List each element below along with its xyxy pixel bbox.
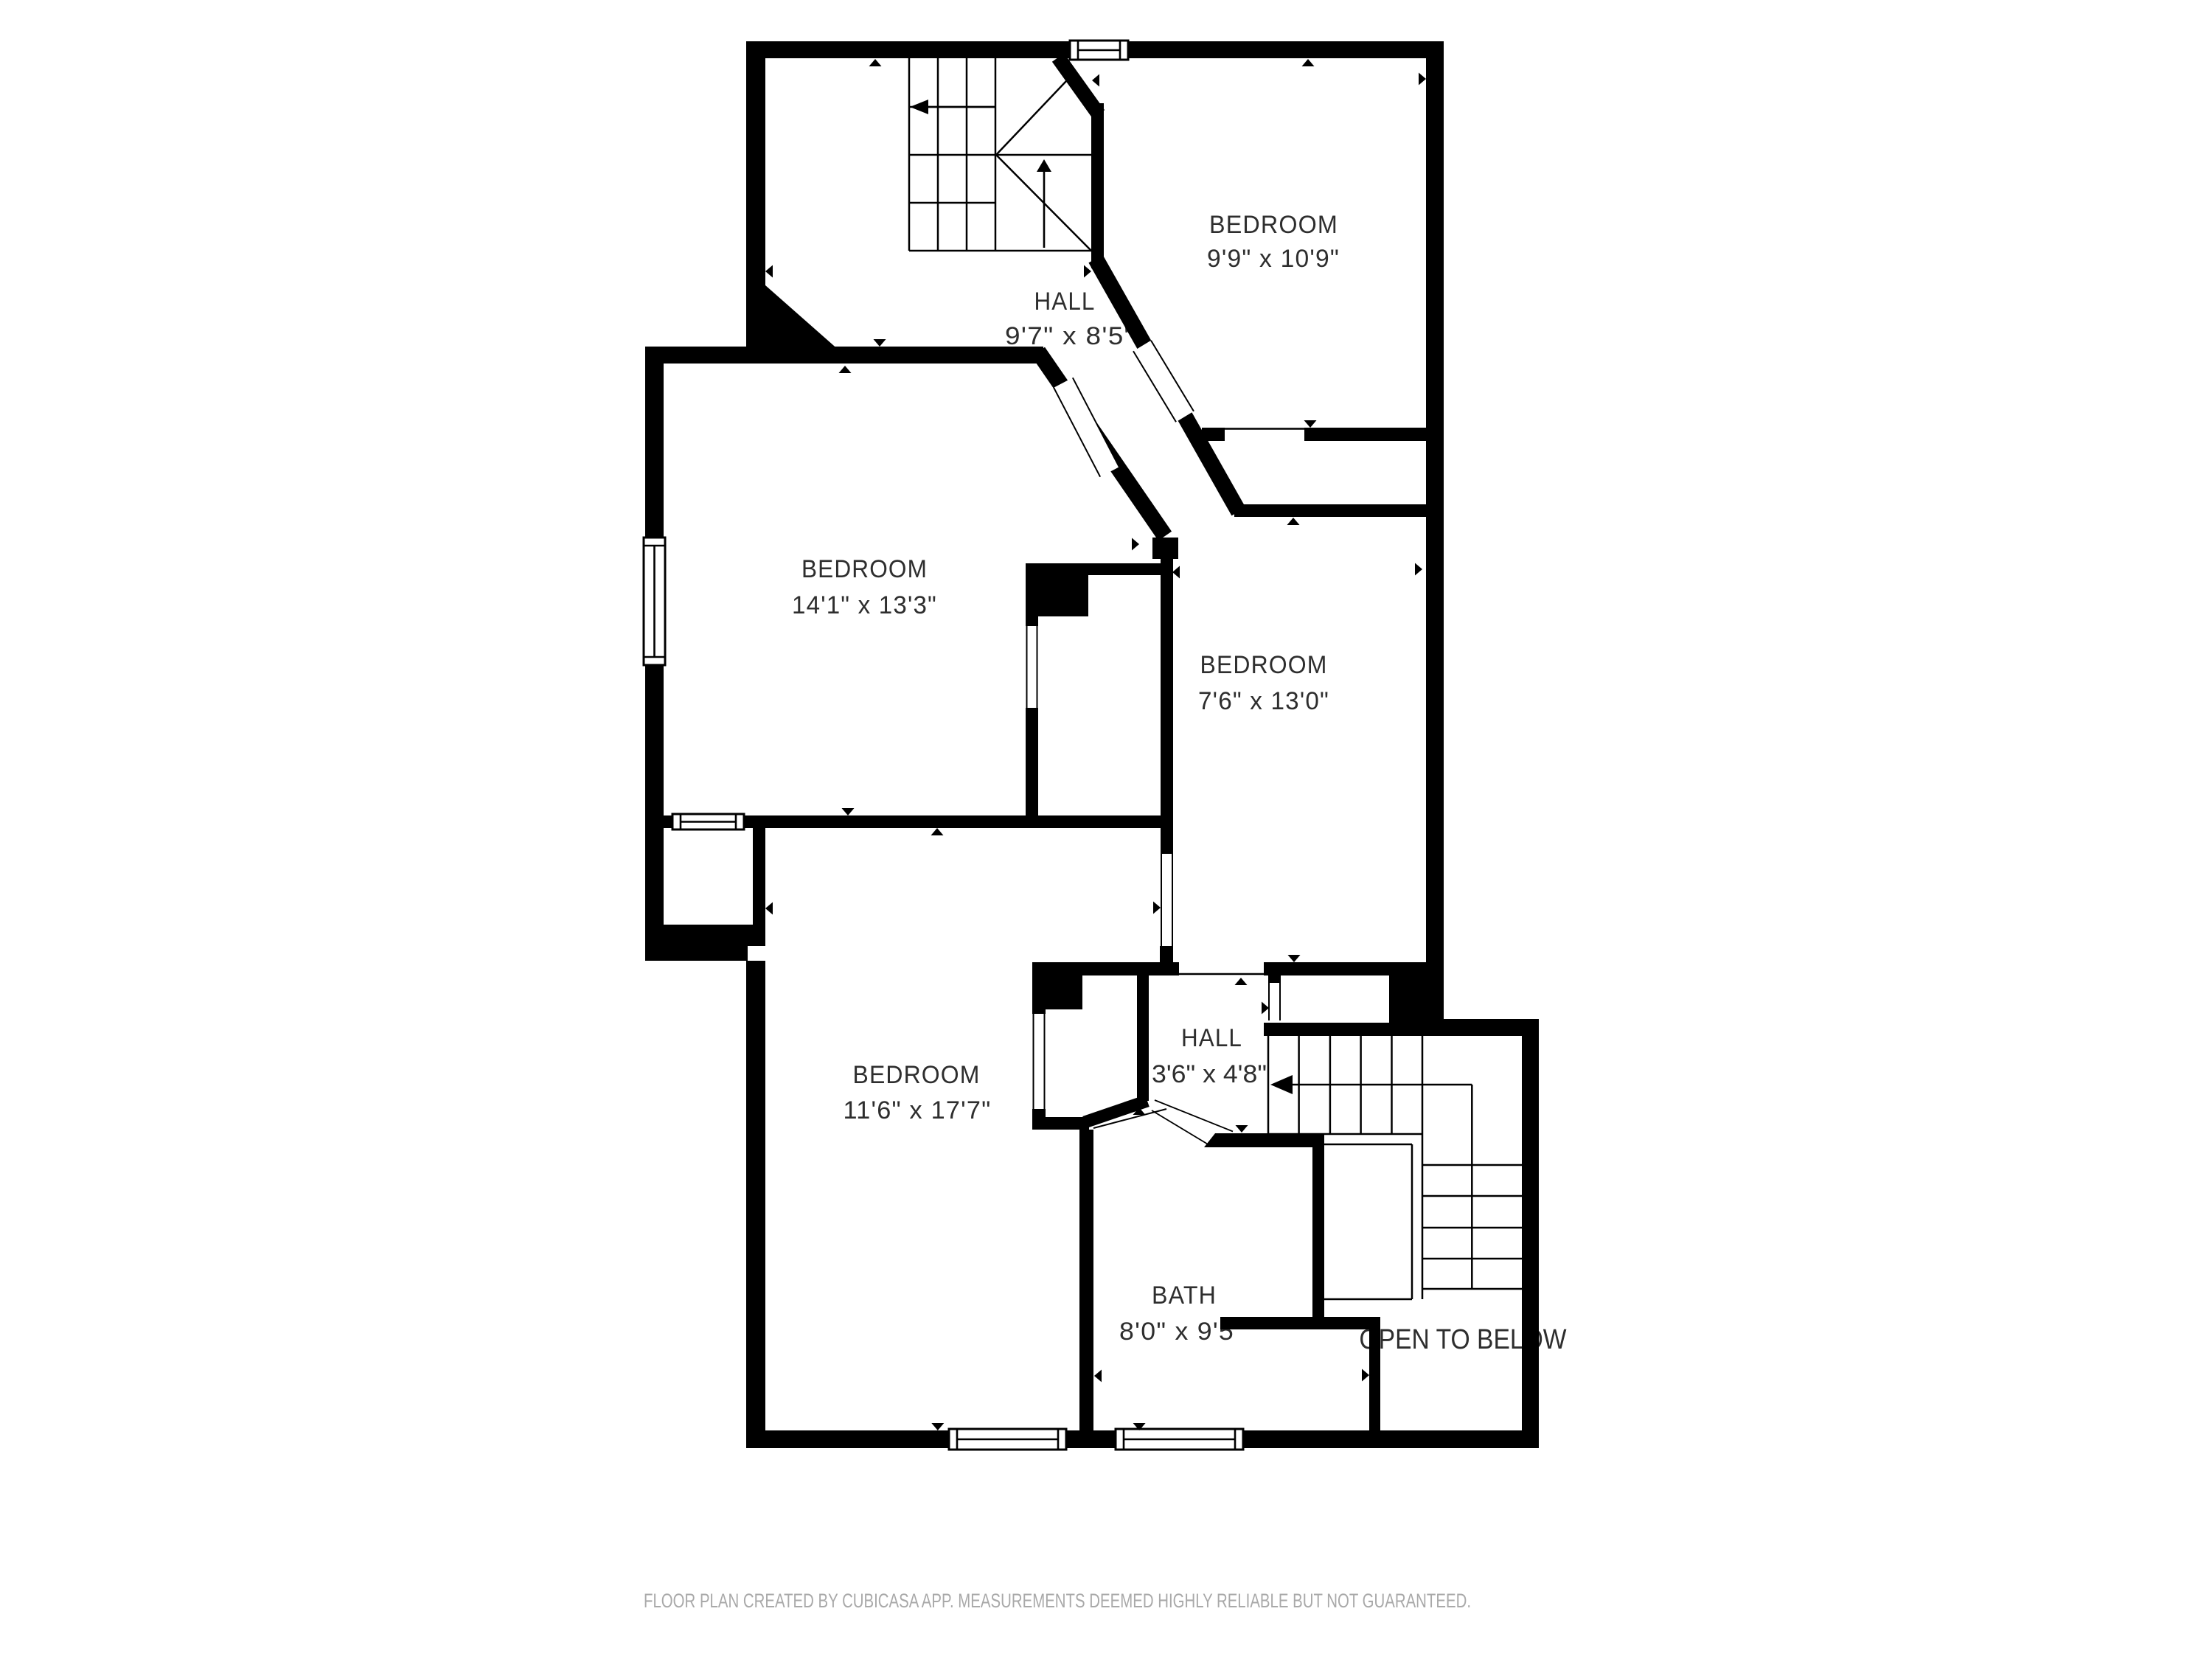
svg-text:FLOOR PLAN CREATED BY CUBICASA: FLOOR PLAN CREATED BY CUBICASA APP. MEAS… bbox=[644, 1590, 1471, 1612]
svg-text:BATH: BATH bbox=[1152, 1281, 1217, 1310]
svg-text:9'9" x 10'9": 9'9" x 10'9" bbox=[1207, 245, 1340, 273]
svg-text:14'1" x 13'3": 14'1" x 13'3" bbox=[792, 591, 937, 619]
svg-text:11'6" x 17'7": 11'6" x 17'7" bbox=[844, 1096, 992, 1124]
svg-text:3'6" x 4'8": 3'6" x 4'8" bbox=[1152, 1060, 1267, 1088]
svg-text:HALL: HALL bbox=[1034, 288, 1096, 316]
svg-text:BEDROOM: BEDROOM bbox=[1209, 211, 1338, 239]
svg-text:BEDROOM: BEDROOM bbox=[853, 1061, 981, 1089]
svg-text:BEDROOM: BEDROOM bbox=[1200, 651, 1328, 679]
svg-text:HALL: HALL bbox=[1181, 1024, 1242, 1052]
svg-text:7'6" x 13'0": 7'6" x 13'0" bbox=[1198, 687, 1329, 715]
svg-text:9'7" x 8'5": 9'7" x 8'5" bbox=[1005, 322, 1135, 350]
svg-text:BEDROOM: BEDROOM bbox=[801, 555, 928, 583]
